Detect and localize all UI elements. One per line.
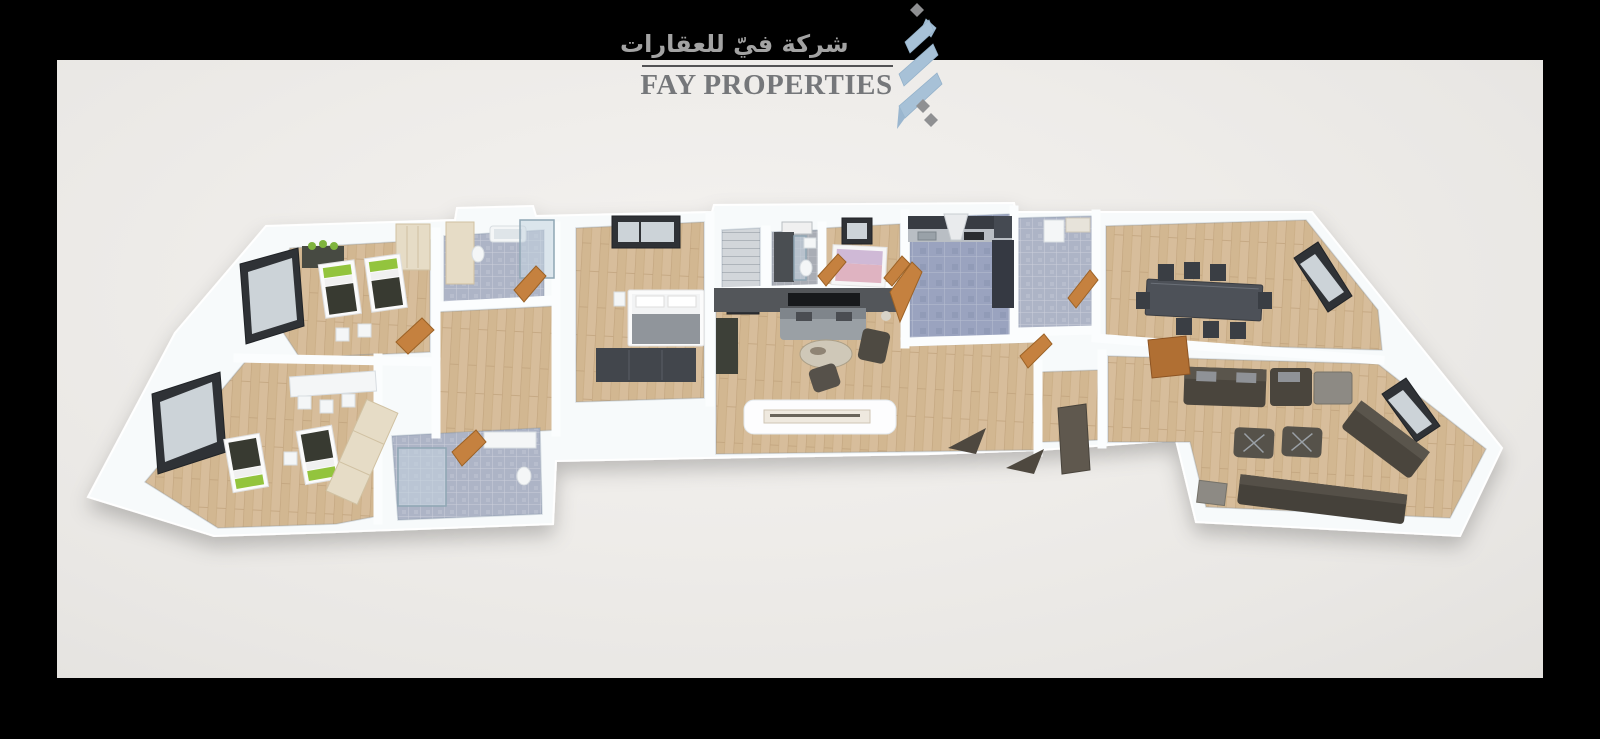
twin-bed — [364, 254, 407, 312]
window-master-top — [612, 216, 680, 248]
tv-screen — [788, 293, 860, 306]
majlis-armchair — [1270, 368, 1312, 406]
floor-lamp — [881, 311, 891, 321]
dining-table — [1145, 279, 1263, 321]
stove — [964, 232, 984, 240]
staircase-floor — [722, 228, 760, 292]
floorplan-render — [0, 0, 1600, 739]
door-leaf-dark — [1058, 404, 1090, 474]
entrance-arrow-icon — [1006, 449, 1044, 474]
tall-cabinet — [992, 240, 1014, 308]
coffee-table — [800, 340, 852, 368]
sink — [918, 232, 936, 240]
pouf — [1281, 426, 1323, 458]
corner-table — [1314, 372, 1352, 404]
door-leaf — [1148, 336, 1190, 378]
twin-bed — [318, 260, 361, 318]
window-small-bedroom — [842, 218, 872, 244]
hallway-floor — [438, 306, 556, 436]
bookshelf — [716, 318, 738, 374]
screenshot-stage: شركة فيّ للعقارات FAY PROPERTIES — [0, 0, 1600, 739]
wardrobe — [596, 348, 696, 382]
sofa — [780, 308, 866, 340]
majlis-sofa — [1183, 367, 1266, 408]
pouf — [1233, 427, 1275, 459]
side-table — [1197, 480, 1227, 505]
